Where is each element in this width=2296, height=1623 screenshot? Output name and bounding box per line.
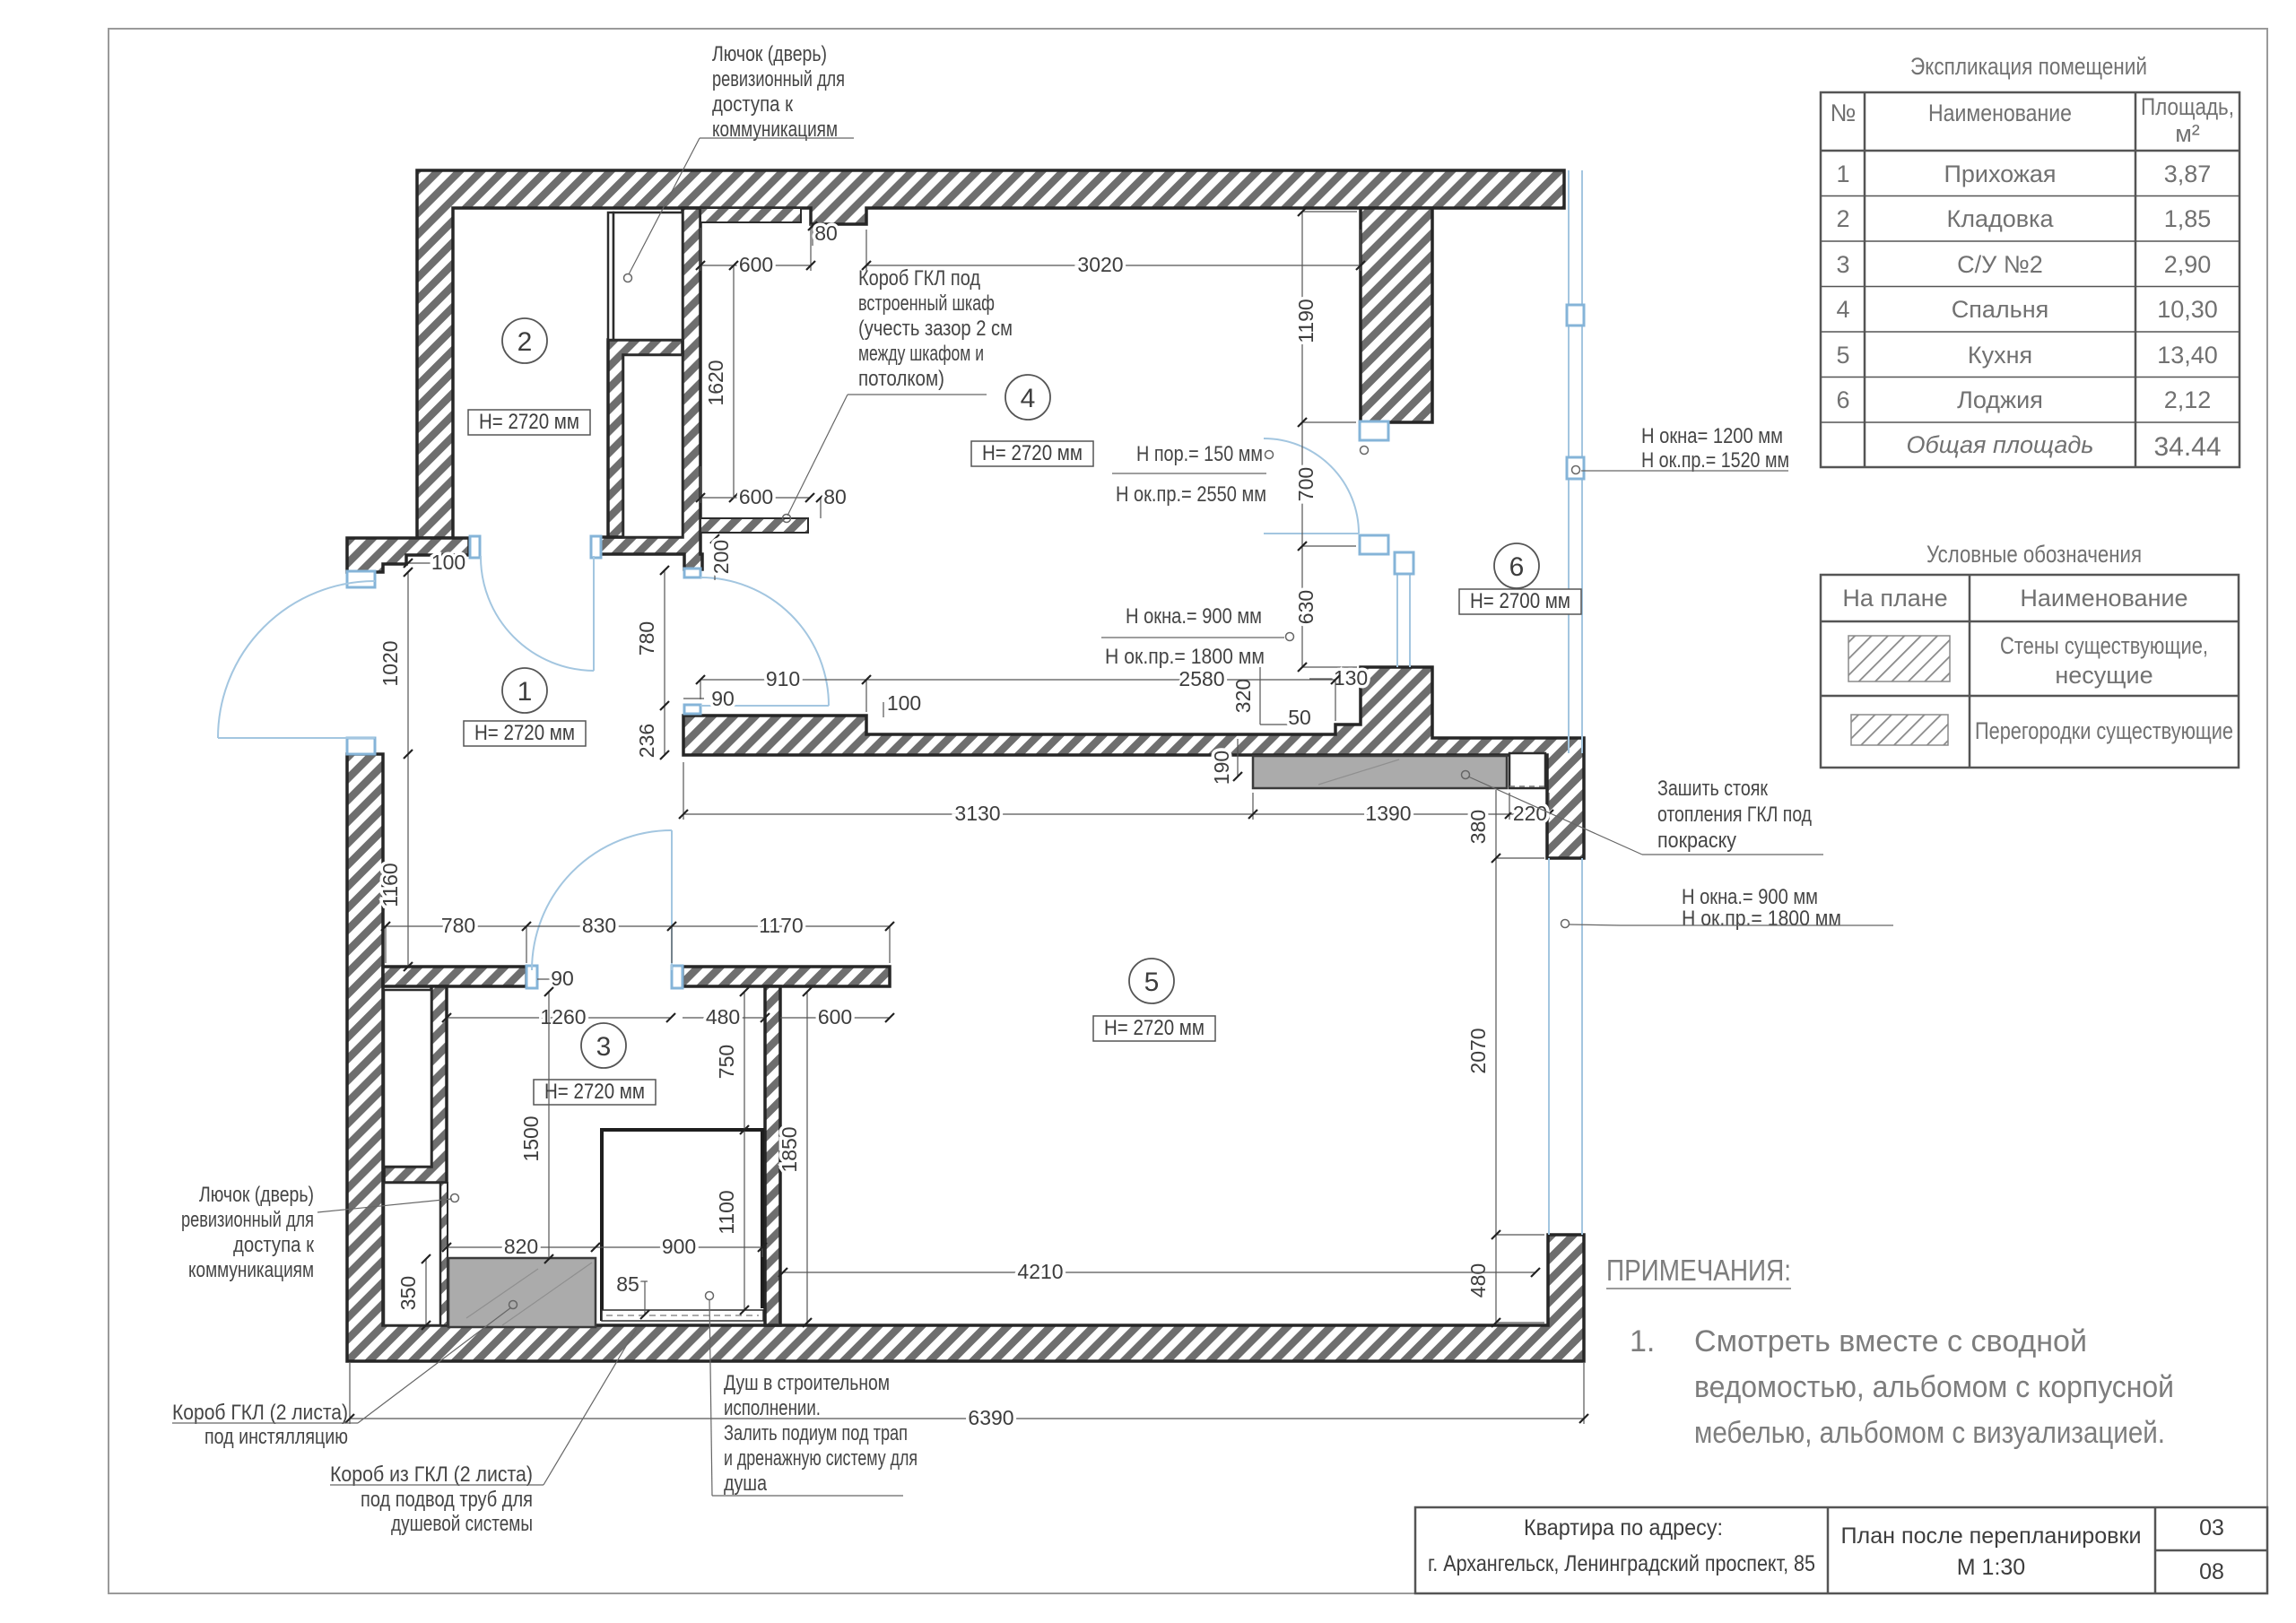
svg-text:1.: 1. [1630,1324,1655,1358]
svg-text:100: 100 [887,691,921,715]
svg-text:6390: 6390 [968,1406,1013,1429]
svg-text:Н окна= 1200 мм: Н окна= 1200 мм [1641,424,1783,448]
svg-text:630: 630 [1294,590,1318,624]
svg-text:1500: 1500 [519,1115,543,1161]
svg-text:750: 750 [715,1045,738,1079]
svg-text:350: 350 [396,1276,420,1310]
svg-text:№: № [1831,100,1857,126]
svg-text:Н ок.пр.= 1800 мм: Н ок.пр.= 1800 мм [1682,907,1841,931]
svg-text:м²: м² [2175,120,2200,147]
svg-text:700: 700 [1294,467,1318,501]
svg-text:Кухня: Кухня [1968,342,2032,369]
svg-text:исполнении.: исполнении. [724,1396,821,1420]
svg-text:4: 4 [1021,384,1036,413]
svg-text:ревизионный для: ревизионный для [712,67,845,91]
svg-text:М 1:30: М 1:30 [1957,1555,2025,1580]
svg-text:1170: 1170 [759,914,803,937]
svg-text:несущие: несущие [2055,662,2152,689]
svg-text:Н ок.пр.= 2550 мм: Н ок.пр.= 2550 мм [1116,482,1266,507]
svg-text:Короб из ГКЛ (2 листа): Короб из ГКЛ (2 листа) [330,1462,533,1487]
svg-text:Площадь,: Площадь, [2141,93,2234,120]
svg-text:H= 2720 мм: H= 2720 мм [1104,1016,1205,1040]
svg-text:С/У №2: С/У №2 [1957,251,2043,278]
svg-text:3130: 3130 [954,802,1000,825]
svg-text:Спальня: Спальня [1952,296,2049,323]
svg-text:600: 600 [739,485,773,508]
svg-text:13,40: 13,40 [2157,342,2218,369]
svg-text:5: 5 [1144,968,1160,997]
svg-text:2,12: 2,12 [2164,386,2212,413]
svg-text:План после перепланировки: План после перепланировки [1841,1523,2142,1549]
svg-text:236: 236 [635,724,658,758]
svg-text:между шкафом и: между шкафом и [858,342,984,366]
svg-text:мебелью, альбомом с визуализац: мебелью, альбомом с визуализацией. [1694,1416,2165,1450]
svg-text:900: 900 [662,1235,696,1258]
svg-text:80: 80 [814,221,838,245]
svg-text:4210: 4210 [1017,1260,1063,1283]
svg-text:Душ в строительном: Душ в строительном [724,1371,890,1395]
svg-text:600: 600 [739,253,773,276]
svg-text:380: 380 [1466,810,1490,844]
svg-text:1,85: 1,85 [2164,205,2212,232]
svg-text:Залить подиум под трап: Залить подиум под трап [724,1421,908,1445]
svg-text:190: 190 [1210,751,1233,785]
svg-text:1020: 1020 [378,640,402,686]
svg-text:100: 100 [431,551,465,574]
svg-text:H= 2720 мм: H= 2720 мм [982,441,1083,465]
svg-text:1390: 1390 [1365,802,1411,825]
svg-text:Н окна.= 900 мм: Н окна.= 900 мм [1682,885,1818,909]
svg-text:1260: 1260 [540,1005,586,1028]
svg-text:и дренажную систему для: и дренажную систему для [724,1446,918,1471]
svg-text:H= 2720 мм: H= 2720 мм [479,410,579,434]
svg-text:ревизионный для: ревизионный для [181,1208,314,1232]
svg-text:220: 220 [1513,802,1547,825]
svg-text:коммуникациям: коммуникациям [188,1258,314,1282]
svg-text:Зашить стояк: Зашить стояк [1657,777,1768,801]
svg-text:доступа к: доступа к [712,92,793,117]
svg-text:2: 2 [1836,205,1849,232]
svg-text:Наименование: Наименование [2020,585,2187,612]
svg-text:Условные обозначения: Условные обозначения [1926,541,2142,568]
svg-text:под подвод труб для: под подвод труб для [361,1488,533,1512]
svg-text:отопления ГКЛ под: отопления ГКЛ под [1657,803,1812,827]
svg-text:03: 03 [2199,1515,2224,1541]
svg-text:Квартира по адресу:: Квартира по адресу: [1524,1515,1723,1541]
svg-text:душевой системы: душевой системы [391,1512,533,1536]
svg-text:покраску: покраску [1657,829,1736,853]
svg-text:50: 50 [1288,706,1311,729]
svg-text:Н ок.пр.= 1800 мм: Н ок.пр.= 1800 мм [1105,645,1265,669]
svg-text:Перегородки существующие: Перегородки существующие [1975,717,2233,744]
svg-text:Н ок.пр.= 1520 мм: Н ок.пр.= 1520 мм [1641,448,1789,473]
svg-text:Лючок (дверь): Лючок (дверь) [199,1183,314,1207]
svg-text:2580: 2580 [1178,667,1224,690]
svg-text:Смотреть вместе с сводной: Смотреть вместе с сводной [1694,1324,2087,1358]
svg-text:доступа к: доступа к [233,1233,314,1257]
svg-text:Экспликация помещений: Экспликация помещений [1910,53,2147,80]
svg-text:08: 08 [2199,1559,2224,1584]
svg-text:2070: 2070 [1466,1028,1490,1073]
svg-text:1100: 1100 [715,1190,738,1234]
svg-text:85: 85 [616,1272,639,1296]
svg-text:H= 2700 мм: H= 2700 мм [1470,589,1570,613]
svg-text:На плане: На плане [1842,585,1947,612]
svg-text:90: 90 [711,687,735,710]
svg-text:H= 2720 мм: H= 2720 мм [474,721,575,745]
svg-text:3: 3 [1836,251,1849,278]
svg-text:90: 90 [551,967,574,990]
svg-text:480: 480 [1466,1263,1490,1298]
svg-text:480: 480 [706,1005,740,1028]
svg-text:130: 130 [1334,666,1368,690]
svg-text:780: 780 [441,914,475,937]
svg-text:4: 4 [1836,296,1849,323]
svg-text:3020: 3020 [1077,253,1123,276]
svg-text:Стены существующие,: Стены существующие, [2000,632,2208,659]
svg-text:34.44: 34.44 [2153,432,2221,462]
svg-text:1620: 1620 [704,360,727,405]
svg-text:встроенный шкаф: встроенный шкаф [858,291,995,316]
svg-text:Короб ГКЛ под: Короб ГКЛ под [858,266,980,291]
svg-text:2,90: 2,90 [2164,251,2212,278]
svg-text:ведомостью, альбомом с корпусн: ведомостью, альбомом с корпусной [1694,1370,2174,1404]
svg-text:потолком): потолком) [858,367,944,391]
svg-text:H= 2720 мм: H= 2720 мм [544,1080,645,1104]
svg-text:Кладовка: Кладовка [1946,205,2054,232]
svg-text:80: 80 [823,485,847,508]
svg-text:Н окна.= 900 мм: Н окна.= 900 мм [1126,604,1262,629]
svg-text:Прихожая: Прихожая [1944,161,2056,187]
svg-text:6: 6 [1509,552,1525,582]
svg-text:780: 780 [635,621,658,655]
svg-text:910: 910 [766,667,800,690]
svg-text:Лоджия: Лоджия [1957,386,2043,413]
svg-text:(учесть зазор 2 см: (учесть зазор 2 см [858,317,1013,341]
svg-text:1: 1 [517,677,533,707]
svg-text:1190: 1190 [1294,299,1318,343]
svg-text:1160: 1160 [378,863,402,907]
svg-text:820: 820 [504,1235,538,1258]
svg-text:г. Архангельск, Ленинградский: г. Архангельск, Ленинградский проспект, … [1428,1551,1815,1576]
svg-text:1850: 1850 [778,1126,801,1172]
svg-text:2: 2 [517,327,533,357]
svg-text:Короб ГКЛ (2 листа): Короб ГКЛ (2 листа) [172,1401,348,1425]
svg-text:Общая площадь: Общая площадь [1907,431,2094,458]
svg-text:душа: душа [724,1471,768,1496]
svg-text:830: 830 [582,914,616,937]
svg-text:6: 6 [1836,386,1849,413]
svg-text:Наименование: Наименование [1928,100,2072,126]
svg-text:3,87: 3,87 [2164,161,2212,187]
svg-text:под инстялляцию: под инстялляцию [204,1425,348,1449]
svg-text:200: 200 [709,540,733,574]
svg-text:3: 3 [596,1032,612,1062]
svg-text:ПРИМЕЧАНИЯ:: ПРИМЕЧАНИЯ: [1606,1254,1791,1287]
svg-text:5: 5 [1836,342,1849,369]
svg-text:Лючок (дверь): Лючок (дверь) [712,42,827,66]
svg-text:1: 1 [1836,161,1849,187]
svg-text:600: 600 [818,1005,852,1028]
svg-text:320: 320 [1231,679,1255,713]
svg-text:Н пор.= 150 мм: Н пор.= 150 мм [1136,442,1263,466]
svg-text:10,30: 10,30 [2157,296,2218,323]
